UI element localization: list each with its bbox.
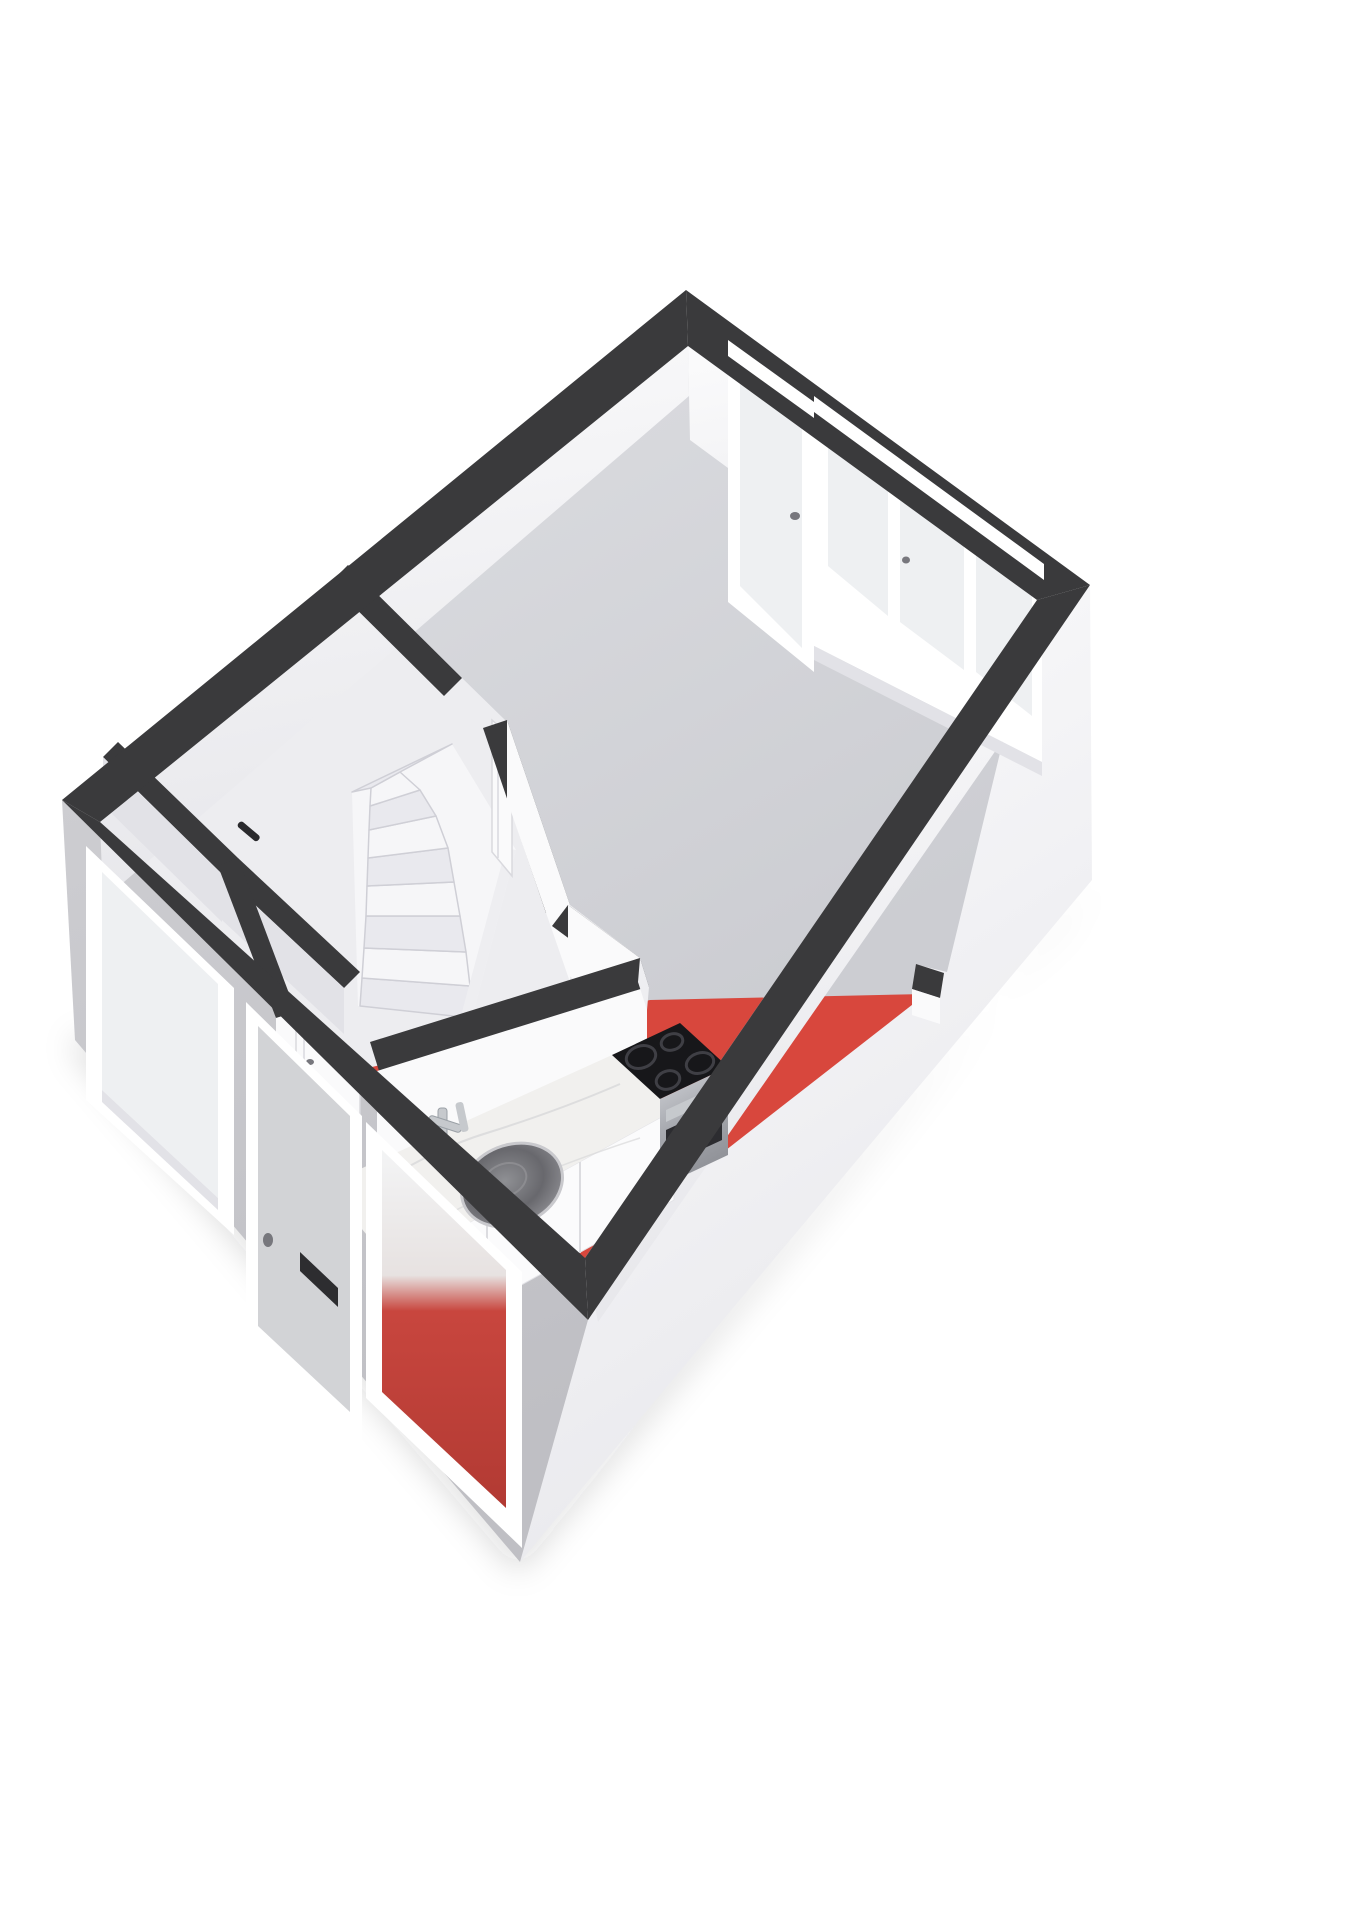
rear-window-handle [902,557,910,564]
front-door-handle [263,1233,273,1247]
stair-step [366,882,460,916]
floorplan-page [0,0,1358,1920]
floorplan-svg [0,0,1358,1920]
stair-step [364,916,466,952]
rear-door-handle [790,512,800,520]
